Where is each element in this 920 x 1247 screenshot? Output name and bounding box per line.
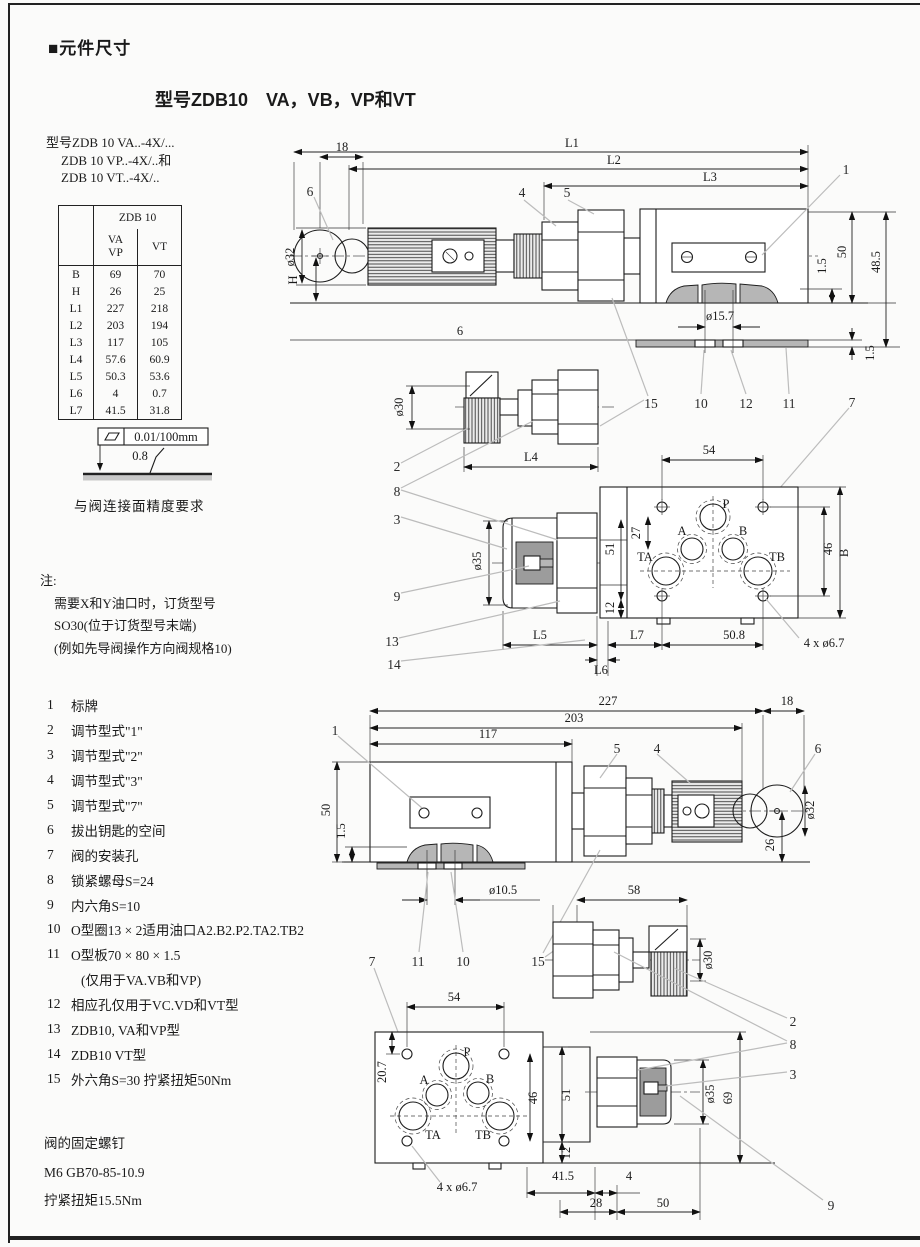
adjustment-knob: [368, 228, 496, 285]
dim-label: 50: [835, 246, 849, 259]
dim-label: 46: [526, 1092, 540, 1105]
dim-label: 12: [603, 602, 617, 615]
port-label-ta: TA: [425, 1128, 441, 1142]
top-side-view: ø15.7 6 18 L1 L2 L3 ø32 H 1.5 50 48.5 1.…: [283, 136, 900, 504]
callout-13: 13: [385, 634, 399, 649]
dim-label: 227: [599, 694, 618, 708]
callout-1: 1: [843, 162, 850, 177]
name-plate: [410, 797, 490, 828]
port-label-p: P: [723, 497, 730, 511]
dim-label: ø35: [703, 1085, 717, 1104]
callout-10: 10: [694, 396, 708, 411]
callout-3: 3: [394, 512, 401, 527]
callout-6: 6: [307, 184, 314, 199]
port-label-a: A: [419, 1073, 428, 1087]
dim-label: 41.5: [552, 1169, 574, 1183]
port-label-ta: TA: [637, 550, 653, 564]
dim-label: L2: [607, 153, 621, 167]
dim-label: 50.8: [723, 628, 745, 642]
knurl-collar: [652, 789, 664, 833]
dim-label: 46: [821, 543, 835, 556]
dim-label: 20.7: [375, 1061, 389, 1083]
port-label-tb: TB: [769, 550, 785, 564]
dim-label: ø30: [392, 398, 406, 417]
dim-label: 51: [559, 1089, 573, 1102]
dim-label: 1.5: [334, 823, 348, 839]
callout-4: 4: [654, 741, 661, 756]
dim-label: 26: [763, 839, 777, 852]
dim-label: H: [286, 275, 300, 284]
dim-label: ø10.5: [489, 883, 517, 897]
callout-11: 11: [783, 396, 796, 411]
shaft-collar: [496, 240, 514, 272]
dim-label: 203: [565, 711, 584, 725]
callout-10: 10: [456, 954, 470, 969]
lock-nut: [542, 222, 578, 290]
name-plate: [672, 243, 765, 272]
callout-3: 3: [790, 1067, 797, 1082]
callout-5: 5: [564, 185, 571, 200]
port-label-b: B: [739, 524, 747, 538]
callout-11: 11: [412, 954, 425, 969]
dim-label: 12: [559, 1147, 573, 1160]
dim-label: 50: [657, 1196, 670, 1210]
dim-label: ø30: [701, 951, 715, 970]
knurl-collar: [514, 234, 542, 278]
dim-label: 48.5: [869, 251, 883, 273]
dim-label: 54: [703, 443, 716, 457]
adjustment-type1-view: ø30 L4: [392, 370, 615, 472]
valve-dimension-drawings: ø15.7 6 18 L1 L2 L3 ø32 H 1.5 50 48.5 1.…: [0, 0, 920, 1247]
bottom-small-view-dia30: 58 ø30: [545, 883, 715, 998]
dim-label: 4 x ø6.7: [804, 636, 845, 650]
spacer: [572, 793, 584, 829]
dim-label: 69: [721, 1092, 735, 1105]
callout-5: 5: [614, 741, 621, 756]
dim-label: 51: [603, 543, 617, 556]
spacer: [624, 238, 640, 274]
callout-8: 8: [394, 484, 401, 499]
dim-label: ø32: [283, 248, 297, 267]
port-label-tb: TB: [475, 1128, 491, 1142]
dim-label: 27: [629, 527, 643, 540]
clamping-wedges: [666, 283, 778, 303]
callout-1: 1: [332, 723, 339, 738]
dim-label: 4 x ø6.7: [437, 1180, 478, 1194]
adjustment-knob: [672, 781, 742, 842]
dim-label: L7: [630, 628, 644, 642]
dim-label: L5: [533, 628, 547, 642]
callout-2: 2: [394, 459, 401, 474]
shaft-collar: [664, 795, 672, 827]
dim-label: L1: [565, 136, 579, 150]
bottom-valve-head-view: ø35 69 2 8 3 9: [585, 952, 835, 1213]
dim-label: B: [837, 549, 851, 557]
callout-2: 2: [790, 1014, 797, 1029]
lock-nut: [626, 778, 652, 844]
dim-label: ø35: [470, 552, 484, 571]
callout-14: 14: [387, 657, 401, 672]
dim-label: 1.5: [863, 345, 877, 361]
dim-label: 28: [590, 1196, 603, 1210]
subplate-strip: [636, 340, 808, 347]
dim-label: 1.5: [815, 258, 829, 274]
dim-label: L6: [594, 663, 608, 677]
subplate-strip: [377, 863, 525, 869]
callout-4: 4: [519, 185, 526, 200]
callout-8: 8: [790, 1037, 797, 1052]
middle-views: ø30 L4 ø35 P A: [385, 370, 851, 677]
callout-15: 15: [531, 954, 545, 969]
dim-label: 18: [781, 694, 794, 708]
dim-label: L3: [703, 170, 717, 184]
port-label-a: A: [677, 524, 686, 538]
outer-hex: [584, 766, 626, 856]
port-label-b: B: [486, 1072, 494, 1086]
dim-label: 4: [626, 1169, 633, 1183]
bottom-port-face-view: P A B TA TB 54 20.7 46 51 12 4 x ø6.7 41…: [375, 990, 775, 1220]
callout-6: 6: [815, 741, 822, 756]
callout-9: 9: [828, 1198, 835, 1213]
callout-12: 12: [739, 396, 753, 411]
dim-label: 58: [628, 883, 641, 897]
dim-label: ø32: [803, 801, 817, 820]
dim-label: 6: [457, 324, 463, 338]
callout-9: 9: [394, 589, 401, 604]
dim-label: ø15.7: [706, 309, 734, 323]
callout-15: 15: [644, 396, 658, 411]
outer-hex: [578, 210, 624, 301]
dim-label: 50: [319, 804, 333, 817]
dim-label: L4: [524, 450, 539, 464]
callout-7: 7: [369, 954, 376, 969]
dim-label: 117: [479, 727, 497, 741]
dim-label: 54: [448, 990, 461, 1004]
callout-7: 7: [849, 395, 856, 410]
port-label-p: P: [464, 1045, 471, 1059]
